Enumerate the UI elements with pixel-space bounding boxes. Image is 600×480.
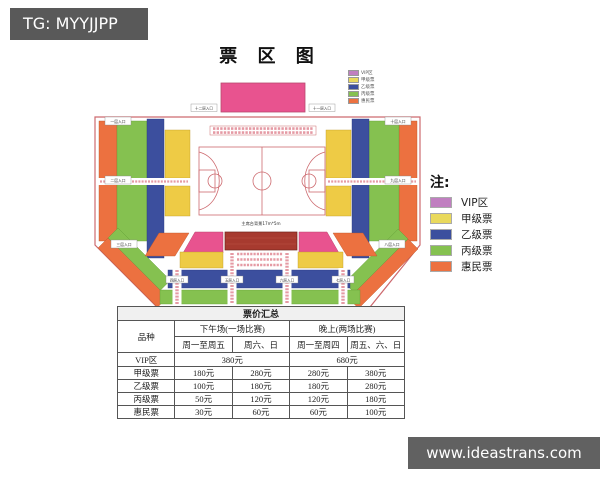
price-table: 票价汇总 品种 下午场(一场比赛) 晚上(两场比赛) 周一至周五 周六、日 周一… [117, 306, 405, 419]
col-header-weekday-ev: 周一至周四 [290, 337, 347, 353]
price-cell: 120元 [290, 393, 347, 406]
price-cell: 380元 [347, 367, 404, 380]
stage-entrance-left: 十二层入口 [191, 104, 217, 112]
table-row: 乙级票 100元 180元 180元 280元 [118, 380, 405, 393]
col-header-weekend-pm: 周六、日 [232, 337, 289, 353]
entrance-bottom-2: 五层入口 [221, 276, 243, 283]
huimin-swatch [430, 261, 452, 273]
row-label: 丙级票 [118, 393, 175, 406]
entrance-label: 一层入口 [110, 119, 125, 124]
entrance-bottom-4: 七层入口 [332, 276, 354, 283]
huimin-swatch [348, 98, 359, 105]
vip-evening-price: 680元 [290, 353, 405, 367]
vip-swatch [348, 70, 359, 77]
price-cell: 120元 [232, 393, 289, 406]
price-cell: 180元 [347, 393, 404, 406]
entrance-label: 五层入口 [225, 277, 240, 282]
price-cell: 60元 [232, 406, 289, 419]
entrance-left-top: 一层入口 [105, 117, 131, 125]
entrance-right-mid: 九层入口 [385, 176, 411, 184]
entrance-right-bottom: 八层入口 [379, 240, 405, 248]
entrance-label-stage-left: 十二层入口 [195, 106, 213, 111]
price-cell: 280元 [347, 380, 404, 393]
price-cell: 100元 [347, 406, 404, 419]
price-cell: 280元 [290, 367, 347, 380]
mini-legend: VIP区 甲级票 乙级票 丙级票 惠民票 [348, 70, 375, 105]
entrance-label: 十层入口 [390, 119, 405, 124]
grade-b-swatch [430, 229, 452, 241]
stage [221, 83, 305, 112]
table-row: 丙级票 50元 120元 120元 180元 [118, 393, 405, 406]
price-cell: 180元 [290, 380, 347, 393]
vip-afternoon-price: 380元 [175, 353, 290, 367]
table-row: VIP区 380元 680元 [118, 353, 405, 367]
entrance-label: 九层入口 [390, 178, 405, 183]
entrance-label: 四层入口 [170, 277, 185, 282]
col-header-category: 品种 [118, 321, 175, 353]
col-header-weekday-pm: 周一至周五 [175, 337, 232, 353]
entrance-label: 二层入口 [110, 178, 125, 183]
row-label: 乙级票 [118, 380, 175, 393]
col-header-afternoon: 下午场(一场比赛) [175, 321, 290, 337]
legend-label: 惠民票 [461, 259, 493, 274]
grade-c-swatch [348, 91, 359, 98]
entrance-label: 六层入口 [280, 277, 295, 282]
mini-legend-label: 甲级票 [361, 77, 375, 83]
legend-label: VIP区 [461, 195, 488, 210]
col-header-weekend-ev: 周五、六、日 [347, 337, 404, 353]
grade-b-swatch [348, 84, 359, 91]
grade-a-swatch [430, 213, 452, 225]
col-header-evening: 晚上(两场比赛) [290, 321, 405, 337]
mini-legend-item: VIP区 [348, 70, 375, 76]
left-grade-a-lower [165, 186, 190, 216]
table-row: 甲级票 180元 280元 280元 380元 [118, 367, 405, 380]
entrance-left-mid: 二层入口 [105, 176, 131, 184]
rostrum [225, 232, 297, 250]
right-grade-a-upper [326, 130, 351, 178]
price-table-title: 票价汇总 [118, 307, 405, 321]
price-cell: 50元 [175, 393, 232, 406]
arena-diagram: 十二层入口 十一层入口 舞台台口12m*7m [85, 62, 430, 322]
legend-item: 乙级票 [430, 228, 493, 241]
legend-label: 丙级票 [461, 243, 493, 258]
legend-item: 甲级票 [430, 212, 493, 225]
bottom-grade-a-right [298, 252, 343, 268]
legend: 注: VIP区 甲级票 乙级票 丙级票 惠民票 [430, 172, 493, 276]
entrance-bottom-3: 六层入口 [276, 276, 298, 283]
watermark-site: www.ideastrans.com [408, 437, 600, 469]
floor-seat-rows [210, 126, 316, 135]
price-cell: 280元 [232, 367, 289, 380]
watermark-tag: TG: MYYJJPP [10, 8, 148, 40]
legend-label: 乙级票 [461, 227, 493, 242]
ticket-map-page: TG: MYYJJPP 票 区 图 十二层入口 十一层入口 舞台台口12m*7m [0, 0, 600, 480]
grade-c-swatch [430, 245, 452, 257]
right-grade-a-lower [326, 186, 351, 216]
stage-entrance-right: 十一层入口 [309, 104, 335, 112]
legend-item: 惠民票 [430, 260, 493, 273]
entrance-label: 三层入口 [116, 242, 131, 247]
price-cell: 100元 [175, 380, 232, 393]
mini-legend-label: 惠民票 [361, 98, 375, 104]
entrance-label: 七层入口 [336, 277, 351, 282]
mini-legend-item: 乙级票 [348, 84, 375, 90]
entrance-label: 八层入口 [384, 242, 399, 247]
vip-swatch [430, 197, 452, 209]
legend-title: 注: [430, 172, 493, 192]
mini-legend-label: 丙级票 [361, 91, 375, 97]
price-cell: 30元 [175, 406, 232, 419]
bottom-grade-b-band [168, 270, 350, 288]
legend-label: 甲级票 [461, 211, 493, 226]
price-cell: 180元 [232, 380, 289, 393]
left-grade-a-upper [165, 130, 190, 178]
mini-legend-label: 乙级票 [361, 84, 375, 90]
rostrum-label: 主席台背景17m*5m [241, 220, 280, 227]
mini-legend-label: VIP区 [361, 70, 373, 76]
price-cell: 60元 [290, 406, 347, 419]
bottom-grade-c-band [160, 290, 360, 304]
price-cell: 180元 [175, 367, 232, 380]
entrance-right-top: 十层入口 [385, 117, 411, 125]
basketball-court [199, 147, 325, 215]
entrance-left-bottom: 三层入口 [111, 240, 137, 248]
legend-item: VIP区 [430, 196, 493, 209]
mini-legend-item: 丙级票 [348, 91, 375, 97]
row-label: 惠民票 [118, 406, 175, 419]
mini-legend-item: 甲级票 [348, 77, 375, 83]
entrance-label-stage-right: 十一层入口 [313, 106, 331, 111]
entrance-bottom-1: 四层入口 [166, 276, 188, 283]
bottom-grade-a-left [180, 252, 223, 268]
row-label-vip: VIP区 [118, 353, 175, 367]
table-row: 惠民票 30元 60元 60元 100元 [118, 406, 405, 419]
grade-a-swatch [348, 77, 359, 84]
mini-legend-item: 惠民票 [348, 98, 375, 104]
row-label: 甲级票 [118, 367, 175, 380]
legend-item: 丙级票 [430, 244, 493, 257]
